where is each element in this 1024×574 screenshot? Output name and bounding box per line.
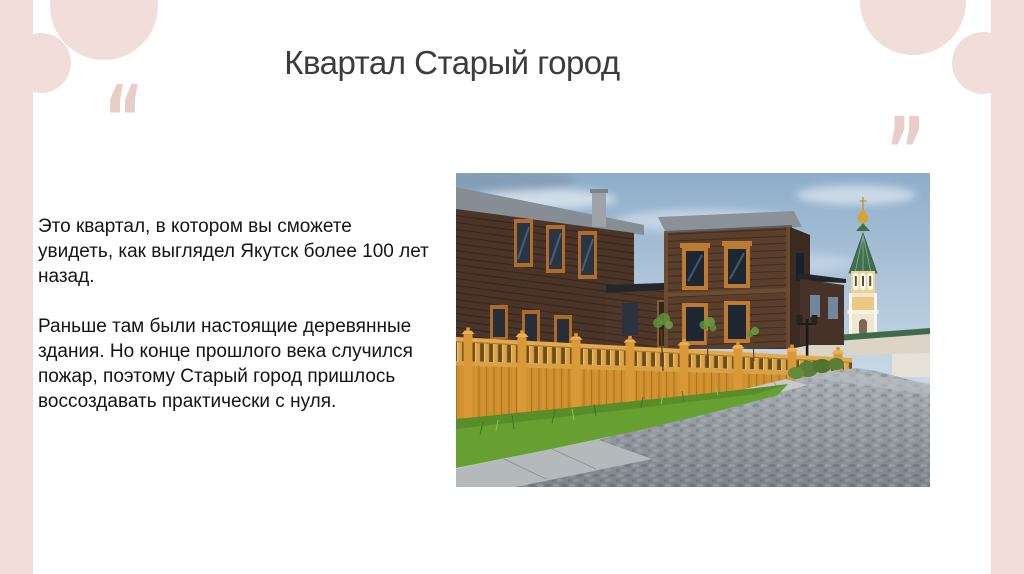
open-quote-mark: “ [104,74,143,166]
slide-title: Квартал Старый город [52,44,852,82]
topright-circle-small [952,32,1014,94]
body-text: Это квартал, в котором вы сможете увидет… [38,214,458,439]
topright-circle-large [860,0,966,55]
slide-canvas: “ ” Квартал Старый город Это квартал, в … [0,0,1024,574]
old-town-photo [456,173,930,487]
paragraph-2: Раньше там были настоящие деревянные зда… [38,314,458,414]
paragraph-1: Это квартал, в котором вы сможете увидет… [38,214,458,289]
